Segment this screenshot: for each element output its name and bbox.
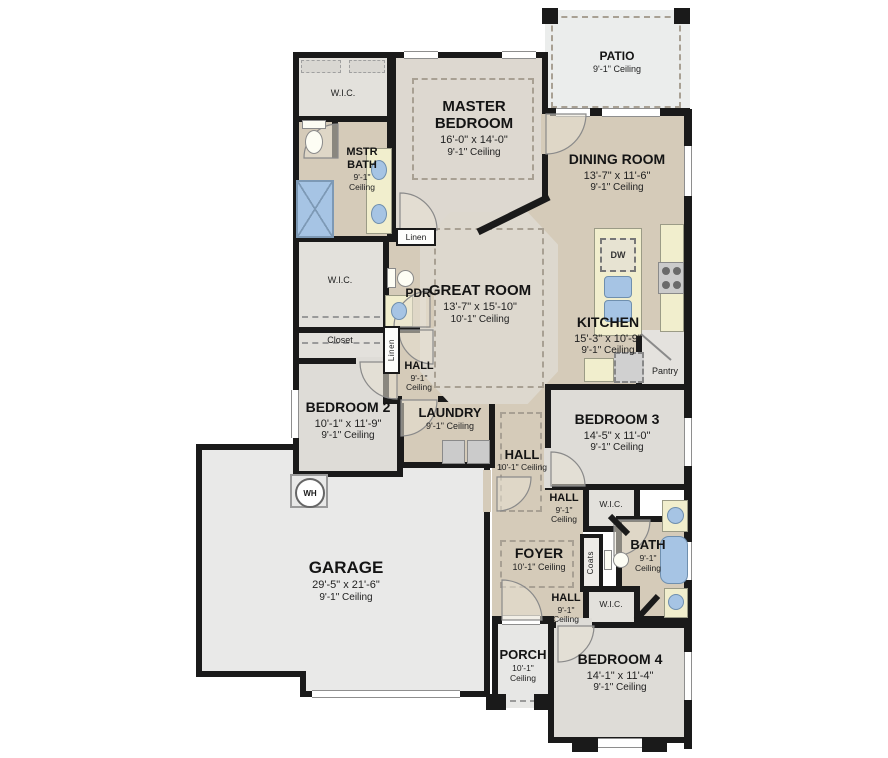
sink-icon [391, 302, 407, 320]
room-label-laundry: LAUNDRY 9'-1" Ceiling [402, 406, 498, 431]
burner-icon [662, 281, 670, 289]
door-swing-arc [399, 330, 433, 364]
kitchen-sink [604, 276, 632, 298]
diagonal-wall [636, 596, 658, 620]
shower [296, 180, 334, 238]
column-post [642, 738, 667, 752]
water-heater: WH [295, 478, 325, 508]
room-label-bedroom2: BEDROOM 2 10'-1" x 11'-9" 9'-1" Ceiling [292, 400, 404, 442]
door-swing-arc [400, 193, 437, 230]
room-label-wic3: W.I.C. [585, 500, 637, 510]
door-swing-arc [497, 477, 531, 511]
toilet-tank [604, 550, 612, 570]
sink-icon [667, 507, 684, 524]
room-label-hall-bed3: HALL 9'-1" Ceiling [544, 492, 584, 525]
room-label-master-bedroom: MASTER BEDROOM 16'-0" x 14'-0" 9'-1" Cei… [400, 98, 548, 158]
room-label-bath2: BATH 9'-1" Ceiling [620, 538, 676, 573]
room-label-kitchen: KITCHEN 15'-3" x 10'-9" 9'-1" Ceiling [547, 315, 669, 357]
room-label-wic1: W.I.C. [318, 88, 368, 98]
burner-icon [673, 281, 681, 289]
linen-label: Linen [387, 339, 396, 361]
door-swing-arc [502, 580, 542, 620]
column-post [572, 738, 598, 752]
room-label-great-room: GREAT ROOM 13'-7" x 15'-10" 10'-1" Ceili… [406, 282, 554, 325]
diagonal-wall [478, 197, 549, 232]
floor-plan: DW WH Linen Linen Coats PATIO 9'-1" Ceil… [0, 0, 888, 758]
toilet-tank [387, 268, 396, 288]
room-label-wic4: W.I.C. [584, 600, 638, 610]
column-post [674, 8, 690, 24]
burner-icon [673, 267, 681, 275]
burner-icon [662, 267, 670, 275]
room-label-hall-bed4: HALL 9'-1" Ceiling [546, 592, 586, 625]
sink-icon [668, 594, 684, 610]
column-post [534, 694, 554, 710]
door-swing-arc [546, 114, 586, 154]
room-label-garage: GARAGE 29'-5" x 21'-6" 9'-1" Ceiling [268, 558, 424, 603]
room-label-bedroom3: BEDROOM 3 14'-5" x 11'-0" 9'-1" Ceiling [546, 412, 688, 454]
cooktop [658, 262, 684, 294]
room-label-pantry: Pantry [642, 366, 688, 376]
room-label-hall-main: HALL 10'-1" Ceiling [492, 448, 552, 473]
door-swing-arc [551, 452, 585, 486]
room-label-wic2: W.I.C. [310, 275, 370, 285]
column-post [486, 694, 506, 710]
dishwasher: DW [600, 238, 636, 272]
room-label-bedroom4: BEDROOM 4 14'-1" x 11'-4" 9'-1" Ceiling [550, 652, 690, 694]
room-label-hall-bed2: HALL 9'-1" Ceiling [394, 360, 444, 393]
coats-label-box: Coats [582, 540, 600, 586]
column-post [542, 8, 558, 24]
sink-icon [371, 204, 387, 224]
water-heater-label: WH [303, 489, 316, 498]
room-label-dining-room: DINING ROOM 13'-7" x 11'-6" 9'-1" Ceilin… [552, 152, 682, 194]
room-label-patio: PATIO 9'-1" Ceiling [577, 50, 657, 74]
linen-closet: Linen [396, 228, 436, 246]
toilet-tank [302, 120, 326, 129]
room-label-closet: Closet [314, 335, 366, 345]
washer [442, 440, 465, 464]
coats-label: Coats [586, 551, 595, 574]
room-label-foyer: FOYER 10'-1" Ceiling [498, 546, 580, 572]
dishwasher-label: DW [611, 250, 626, 260]
room-label-master-bath: MSTR BATH 9'-1" Ceiling [334, 146, 390, 192]
linen-label: Linen [406, 232, 427, 242]
dryer [467, 440, 490, 464]
room-label-porch: PORCH 10'-1" Ceiling [496, 648, 550, 683]
toilet-icon [305, 130, 323, 154]
